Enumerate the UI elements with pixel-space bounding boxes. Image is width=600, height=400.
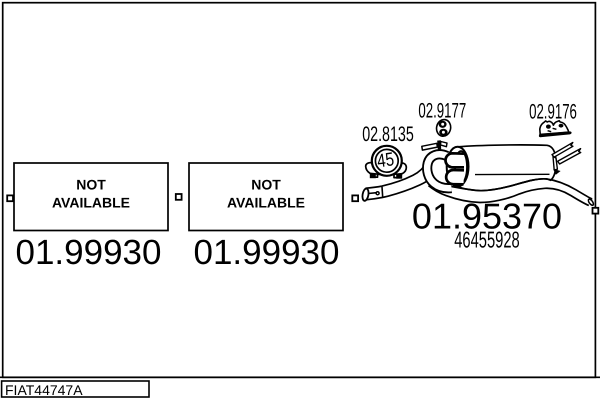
svg-text:NOT: NOT: [76, 177, 106, 193]
svg-text:AVAILABLE: AVAILABLE: [227, 195, 305, 211]
svg-text:02.9176: 02.9176: [529, 100, 577, 123]
svg-text:45: 45: [376, 149, 396, 172]
svg-text:46455928: 46455928: [454, 227, 520, 253]
svg-text:02.8135: 02.8135: [362, 123, 414, 146]
svg-text:FIAT44747A: FIAT44747A: [5, 382, 83, 398]
svg-text:NOT: NOT: [251, 177, 281, 193]
svg-text:AVAILABLE: AVAILABLE: [52, 195, 130, 211]
svg-text:01.99930: 01.99930: [194, 233, 340, 272]
svg-text:01.99930: 01.99930: [16, 233, 162, 272]
